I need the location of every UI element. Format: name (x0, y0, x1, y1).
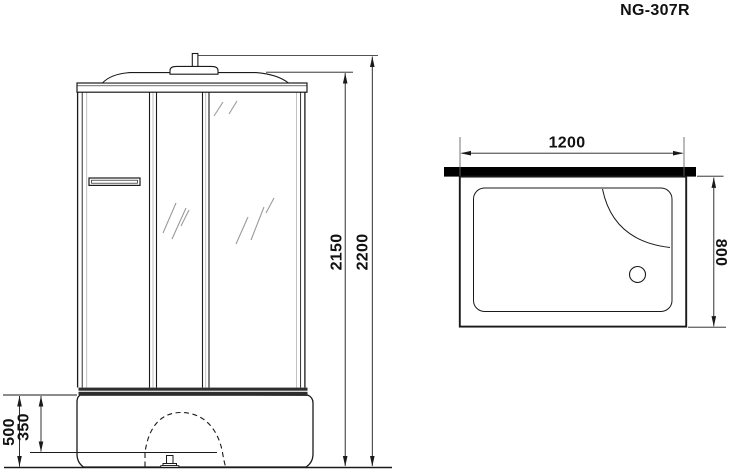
glass-panel-frames (78, 93, 305, 388)
dim-label-350: 350 (16, 413, 33, 441)
dim-label-2200: 2200 (355, 234, 372, 271)
vent-cap (170, 66, 218, 74)
door-handle (89, 178, 140, 185)
dim-label-800: 800 (712, 239, 729, 267)
drawing-svg: 500 350 2150 2200 (0, 0, 730, 472)
vent-pipe (192, 54, 198, 68)
glass-reflection-marks (163, 101, 274, 244)
tray-outline-plan (460, 177, 686, 327)
back-wall-panel (444, 167, 696, 177)
dim-label-2150: 2150 (329, 234, 346, 271)
front-view: 500 350 2150 2200 (1, 54, 392, 468)
shower-tray-front (77, 395, 313, 467)
dimension-1200 (461, 151, 684, 156)
dimension-350 (39, 396, 44, 452)
model-title: NG-307R (620, 2, 690, 19)
dim-label-1200: 1200 (549, 135, 586, 152)
technical-drawing-page: 500 350 2150 2200 (0, 0, 730, 472)
plan-view: 1200 800 (444, 135, 729, 328)
top-frame-band (77, 83, 307, 92)
bottom-frame-band (79, 388, 308, 395)
